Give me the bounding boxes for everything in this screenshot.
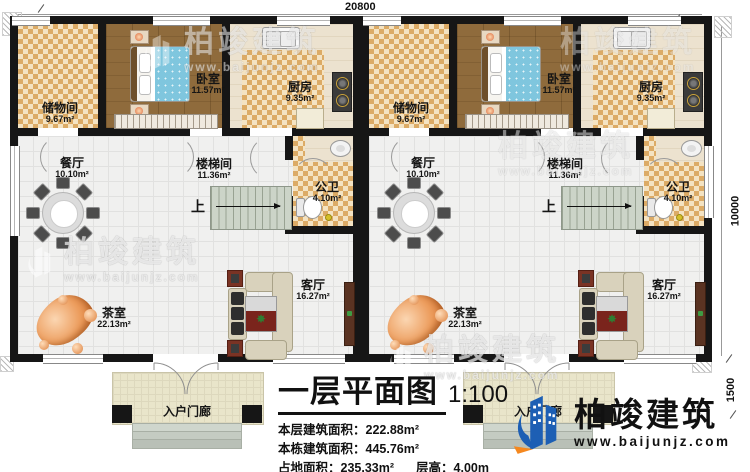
side-table-top: [231, 274, 239, 283]
tea-stool: [58, 295, 68, 305]
sink-basin: [631, 31, 647, 47]
nightstand: [130, 30, 149, 44]
window-right-exterior: [704, 146, 714, 218]
wall-h-2: [78, 128, 190, 136]
entry-double-door: [153, 362, 219, 396]
bed: [130, 46, 190, 102]
rug-top: [597, 297, 627, 311]
dining-chair: [56, 237, 70, 249]
tea-stool: [72, 343, 83, 354]
building-area-line: 本栋建筑面积：445.76m²: [278, 440, 508, 459]
title-underline: [278, 412, 446, 415]
side-table: [578, 340, 594, 357]
side-table-top: [582, 274, 590, 283]
bed-pillow: [490, 75, 502, 95]
cushion: [582, 322, 595, 335]
sink-drain: [336, 145, 346, 153]
stairs-up-label: 上: [191, 200, 205, 215]
side-table-top: [582, 344, 590, 353]
stairs-direction-arrow: [216, 206, 280, 207]
wall-storage-bedroom: [98, 24, 106, 128]
room-label-tearoom: 茶室 22.13m²: [97, 307, 131, 329]
bed-headboard: [131, 47, 137, 101]
tea-stool: [390, 340, 400, 350]
dining-table-top: [401, 200, 429, 228]
unit-left: 上: [10, 16, 361, 362]
room-label-bathroom: 公卫 4.10m²: [313, 181, 342, 203]
wall-top-1: [401, 16, 504, 24]
tea-stool: [84, 309, 97, 322]
porch-pillar-right: [242, 405, 262, 423]
window-top-bedroom: [504, 16, 561, 26]
cushion: [231, 322, 244, 335]
window-top-kitchen: [277, 16, 330, 26]
room-label-kitchen: 厨房 9.35m²: [286, 81, 315, 103]
footprint-line: 占地面积：235.33m²层高：4.00m: [278, 459, 508, 472]
room-label-storage: 储物间 9.67m²: [393, 102, 429, 124]
wall-left: [361, 16, 369, 362]
title-block: 一层平面图 1:100 本层建筑面积：222.88m² 本栋建筑面积：445.7…: [278, 366, 508, 472]
side-table: [227, 270, 243, 287]
plant-icon: ✸: [256, 312, 266, 326]
window-top-storage: [12, 16, 50, 26]
room-label-living: 客厅 16.27m²: [296, 279, 330, 301]
wall-h-3: [222, 128, 250, 136]
tv-icon: [347, 311, 352, 316]
wall-h-1: [18, 128, 38, 136]
sofa-bottom: [245, 340, 287, 360]
wall-top-3: [330, 16, 361, 24]
porch-pillar-left: [112, 405, 132, 423]
room-label-tearoom: 茶室 22.13m²: [448, 307, 482, 329]
bed-pillow: [139, 53, 151, 73]
bed-pillow: [139, 75, 151, 95]
bed-blanket: [502, 47, 540, 101]
stairs-up-label: 上: [542, 200, 556, 215]
cushion: [582, 307, 595, 320]
stove: [683, 72, 703, 112]
window-bottom-tearoom: [394, 354, 454, 364]
sink-basin: [266, 31, 282, 47]
wardrobe: [114, 114, 218, 129]
company-logo: 柏竣建筑 www.baijunjz.com: [508, 392, 731, 454]
tv-cabinet: [344, 282, 355, 346]
wall-bottom-1: [10, 354, 43, 362]
burner: [687, 77, 700, 90]
tv-cabinet: [695, 282, 706, 346]
top-left-break-tick: [38, 4, 45, 13]
side-table: [227, 340, 243, 357]
dining-chair: [86, 207, 100, 219]
window-top-storage: [363, 16, 401, 26]
dimension-width: 20800: [342, 1, 379, 13]
wall-storage-bedroom: [449, 24, 457, 128]
wall-bottom-1: [361, 354, 394, 362]
tea-stool: [409, 295, 419, 305]
wall-top-2: [561, 16, 628, 24]
tea-stool: [39, 340, 49, 350]
dining-table: [393, 192, 435, 234]
dining-chair: [26, 207, 40, 219]
floorplan-canvas: 20800 10000 1500: [0, 0, 750, 472]
bed: [481, 46, 541, 102]
kitchen-cabinet: [296, 108, 324, 129]
room-label-living: 客厅 16.27m²: [647, 279, 681, 301]
dining-table: [42, 192, 84, 234]
burner: [336, 77, 349, 90]
porch-step: [132, 439, 242, 449]
burner: [687, 94, 700, 107]
bed-blanket: [151, 47, 189, 101]
wall-h-1: [369, 128, 389, 136]
tv-icon: [698, 311, 703, 316]
room-label-porch: 入户门廊: [163, 406, 211, 419]
tea-stool: [435, 309, 448, 322]
company-name: 柏竣建筑: [574, 398, 731, 431]
wall-h-4: [643, 128, 704, 136]
floor-drain: [676, 214, 683, 221]
room-label-storage: 储物间 9.67m²: [42, 102, 78, 124]
company-logo-icon: [508, 392, 566, 454]
sink-basin: [617, 31, 633, 47]
wall-h-4: [292, 128, 353, 136]
sofa-bottom: [596, 340, 638, 360]
plan-scale: 1:100: [448, 381, 508, 409]
window-top-kitchen: [628, 16, 681, 26]
rug-top: [246, 297, 276, 311]
dining-chair: [377, 207, 391, 219]
kitchen-door-arc: [601, 136, 645, 180]
rug-bottom: ✸: [246, 311, 276, 331]
dining-chair: [437, 207, 451, 219]
wardrobe: [465, 114, 569, 129]
bed-pillow: [490, 53, 502, 73]
room-label-stairwell: 楼梯间 11.36m²: [196, 158, 232, 180]
dining-table-top: [50, 200, 78, 228]
room-label-kitchen: 厨房 9.35m²: [637, 81, 666, 103]
bathroom-sink: [681, 140, 702, 157]
wall-top-1: [50, 16, 153, 24]
wall-bath-bottom: [285, 226, 353, 234]
wall-bottom-2: [454, 354, 504, 362]
wall-top-2: [210, 16, 277, 24]
dimension-height: 10000: [729, 193, 741, 230]
window-bottom-tearoom: [43, 354, 103, 364]
side-table: [578, 270, 594, 287]
rug: ✸: [245, 296, 277, 332]
room-label-stairwell: 楼梯间 11.36m²: [547, 158, 583, 180]
dining-chair: [407, 237, 421, 249]
bedroom-door-arc: [152, 136, 194, 178]
floor-drain: [325, 214, 332, 221]
wall-top-3: [681, 16, 712, 24]
plan-title: 一层平面图: [278, 366, 438, 411]
room-label-dining: 餐厅 10.10m²: [406, 157, 440, 179]
plant-icon: ✸: [607, 312, 617, 326]
wall-h-2: [429, 128, 541, 136]
floor-area-line: 本层建筑面积：222.88m²: [278, 421, 508, 440]
cushion: [231, 292, 244, 305]
rug-bottom: ✸: [597, 311, 627, 331]
room-label-bedroom: 卧室 11.57m²: [542, 73, 575, 95]
company-website: www.baijunjz.com: [574, 434, 731, 449]
porch-dim-tick-bottom: [730, 410, 737, 419]
room-label-dining: 餐厅 10.10m²: [55, 157, 89, 179]
unit-right: 上: [361, 16, 712, 362]
wall-bottom-2: [103, 354, 153, 362]
window-top-bedroom: [153, 16, 210, 26]
lamp: [135, 33, 143, 41]
kitchen-cabinet: [647, 108, 675, 129]
porch-dim-tick-top: [726, 354, 733, 363]
bathroom-sink: [330, 140, 351, 157]
tea-stool: [423, 343, 434, 354]
wall-bath-bottom: [636, 226, 704, 234]
room-label-bedroom: 卧室 11.57m²: [191, 73, 224, 95]
bedroom-door-arc: [503, 136, 545, 178]
nightstand: [481, 30, 500, 44]
stairs-direction-arrow: [567, 206, 631, 207]
burner: [336, 94, 349, 107]
right-dimension-line: [721, 26, 722, 356]
entry-double-door: [504, 362, 570, 396]
stove: [332, 72, 352, 112]
window-left-exterior: [10, 146, 20, 236]
corner-hatch-topright: [714, 16, 732, 38]
sink-basin: [280, 31, 296, 47]
cushion: [582, 292, 595, 305]
wall-h-3: [573, 128, 601, 136]
cushion: [231, 307, 244, 320]
side-table-top: [231, 344, 239, 353]
room-label-bathroom: 公卫 4.10m²: [664, 181, 693, 203]
kitchen-door-arc: [250, 136, 294, 180]
lamp: [486, 33, 494, 41]
wall-bottom-4: [696, 354, 712, 362]
top-dimension-line: [18, 14, 702, 15]
kitchen-sink: [262, 27, 300, 49]
kitchen-sink: [613, 27, 651, 49]
bed-headboard: [482, 47, 488, 101]
wall-bottom-4: [345, 354, 361, 362]
sink-drain: [687, 145, 697, 153]
rug: ✸: [596, 296, 628, 332]
plan: 上: [10, 16, 712, 362]
